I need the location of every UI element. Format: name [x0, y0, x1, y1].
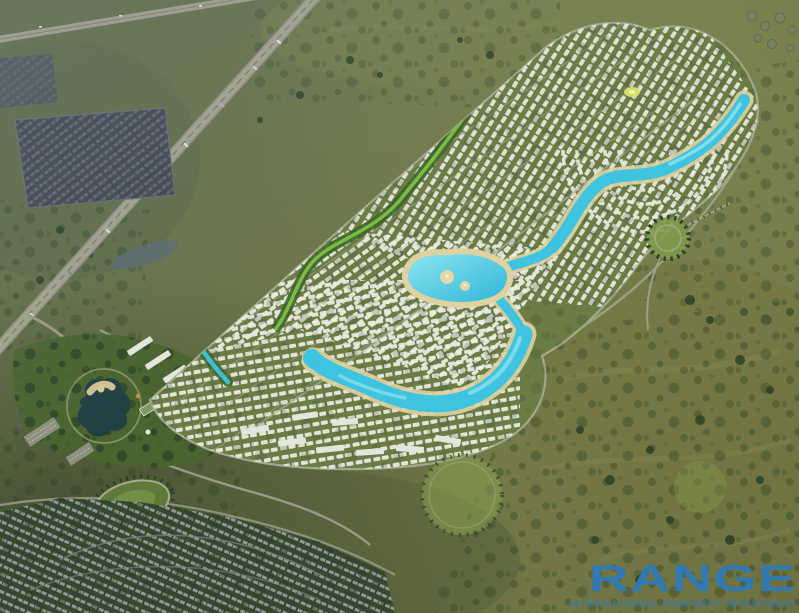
- aerial-photo-stage: RANGE INTERNATIONAL PROPERTY INVESTMENT: [0, 0, 799, 613]
- aerial-masterplan-photo: [0, 0, 799, 613]
- haze-overlay: [0, 0, 799, 613]
